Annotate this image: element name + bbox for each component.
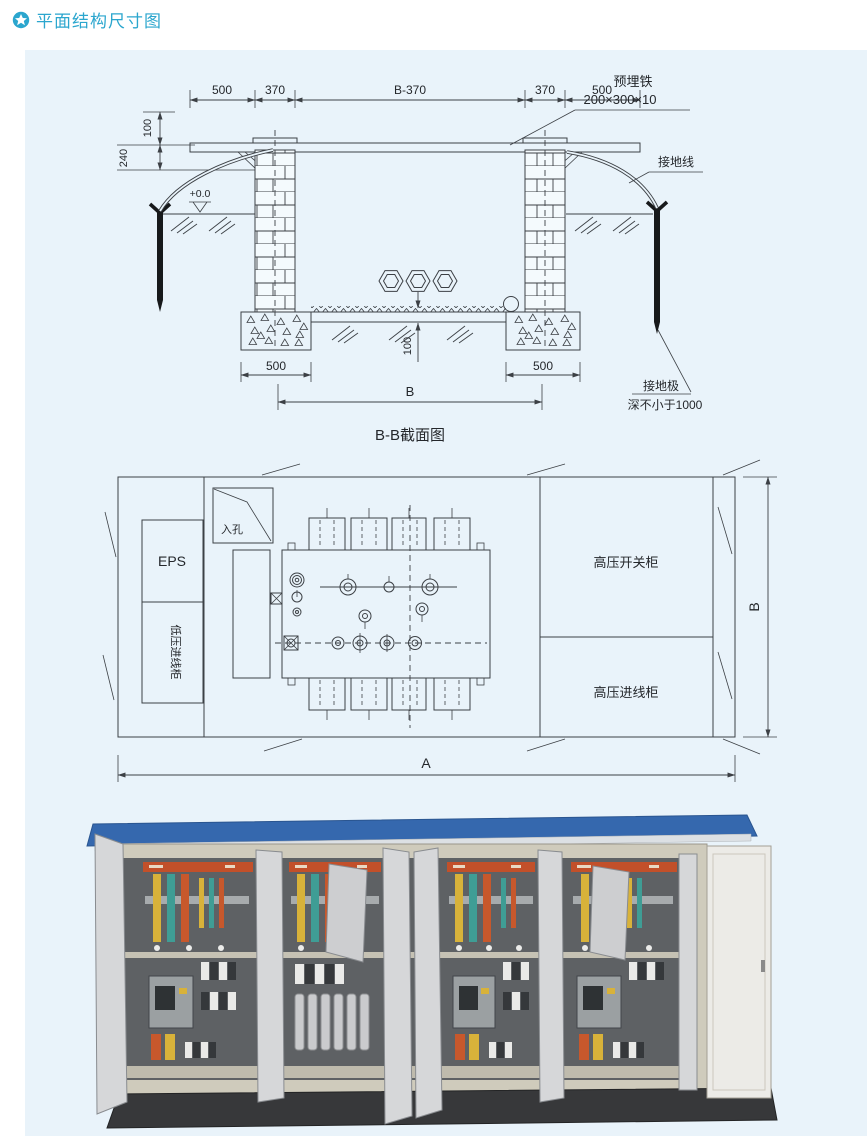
ground-electrode-right — [647, 202, 667, 334]
ground-electrode-callout: 接地极 深不小于1000 — [628, 330, 703, 412]
photo-closed-door — [707, 846, 771, 1098]
depth-dimension: B — [743, 477, 777, 737]
top-dimension-chain: 500 370 B-370 370 500 — [190, 83, 640, 108]
dim-slab-100: 100 — [402, 337, 414, 355]
dim-500-left: 500 — [212, 83, 232, 97]
photo-open-door — [538, 850, 564, 1102]
circled-star-icon — [12, 11, 30, 29]
transformer-plan — [271, 505, 490, 728]
dim-width-a: A — [421, 755, 431, 771]
grade-level: +0.0 — [163, 188, 653, 234]
eps-label: EPS — [158, 553, 186, 569]
manhole-label: 入孔 — [221, 523, 243, 536]
dim-footing-left: 500 — [266, 359, 286, 373]
photo-open-door — [95, 834, 127, 1114]
footing-right — [506, 312, 580, 350]
section-drawing: 500 370 B-370 370 500 100 240 +0.0 — [105, 62, 765, 452]
anchor-bolts — [379, 271, 519, 312]
switchgear-photo — [83, 810, 783, 1135]
cable-channel — [233, 550, 270, 678]
ground-wire-callout: 接地线 — [629, 154, 703, 183]
hv-incoming-label: 高压进线柜 — [593, 685, 658, 700]
dim-footing-right: 500 — [533, 359, 553, 373]
dim-b370: B-370 — [394, 83, 426, 97]
width-dimension: A — [118, 755, 735, 782]
electrode-depth-label: 深不小于1000 — [628, 398, 703, 412]
door-swing-marks — [103, 460, 760, 754]
hv-switch-label: 高压开关柜 — [593, 555, 658, 570]
photo-open-door — [326, 864, 367, 962]
embedded-iron-label: 预埋铁 — [613, 74, 652, 89]
plan-drawing: EPS 低压进线柜 入孔 — [95, 450, 785, 790]
ground-wire-right — [567, 152, 657, 208]
slab-thickness-dim: 100 — [402, 292, 418, 362]
ground-electrode-left — [150, 204, 170, 312]
photo-open-door — [256, 850, 284, 1102]
embedded-iron-size: 200×300×10 — [583, 92, 656, 107]
section-title: 平面结构尺寸图 — [12, 7, 162, 32]
footing-left — [241, 312, 311, 350]
manhole: 入孔 — [213, 488, 273, 543]
dim-depth-b: B — [746, 602, 762, 611]
dim-100-left: 100 — [142, 119, 154, 137]
photo-open-door — [590, 866, 629, 960]
dim-370-left: 370 — [265, 83, 285, 97]
dim-370-right: 370 — [535, 83, 555, 97]
radiators-top — [309, 508, 470, 550]
level-label: +0.0 — [190, 188, 211, 200]
page-title: 平面结构尺寸图 — [36, 7, 162, 32]
photo-open-door — [679, 854, 697, 1090]
photo-open-door — [383, 848, 412, 1124]
lv-cabinet-label: 低压进线柜 — [169, 625, 183, 680]
electrode-label: 接地极 — [643, 378, 679, 393]
bottom-dimension-chain: 500 500 B — [241, 359, 580, 410]
radiators-bottom — [309, 678, 470, 720]
dim-overall-b: B — [406, 384, 415, 399]
photo-open-door — [414, 848, 442, 1118]
section-caption: B-B截面图 — [375, 427, 445, 444]
dim-240-left: 240 — [118, 149, 130, 167]
ground-wire-label: 接地线 — [658, 154, 694, 169]
